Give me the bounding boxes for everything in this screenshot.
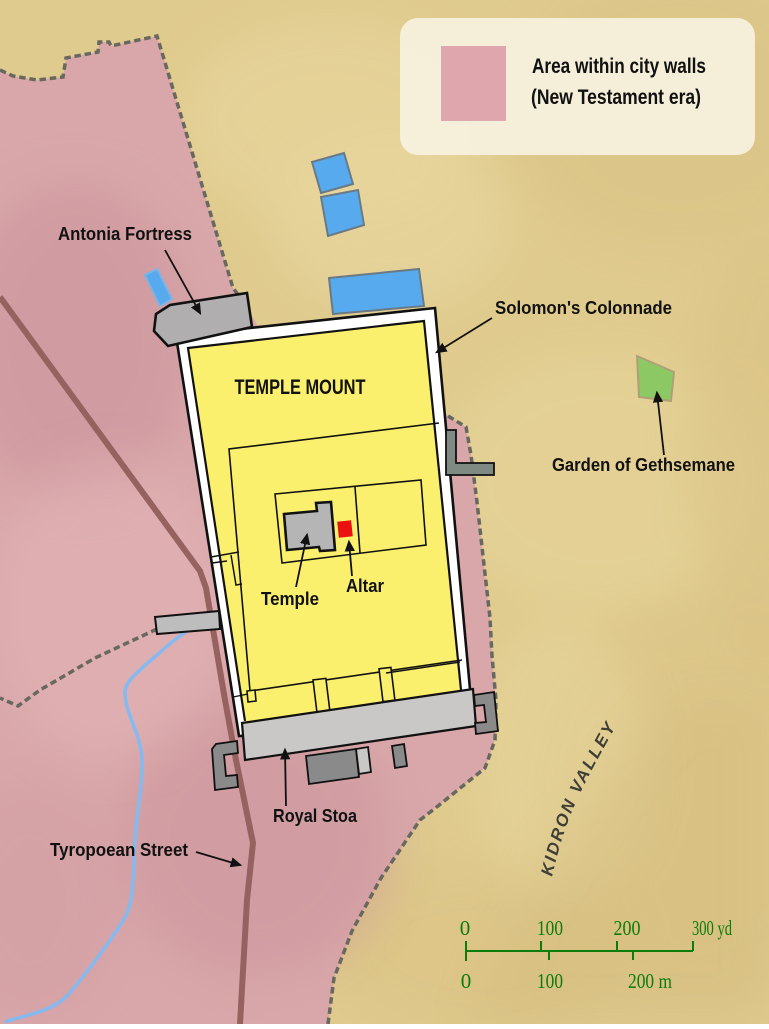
svg-text:200: 200 [614, 916, 641, 940]
svg-text:Garden of Gethsemane: Garden of Gethsemane [552, 455, 735, 475]
svg-text:Antonia Fortress: Antonia Fortress [58, 224, 192, 244]
svg-text:0: 0 [460, 916, 471, 940]
svg-text:200 m: 200 m [628, 969, 672, 993]
svg-text:(New Testament era): (New Testament era) [531, 85, 701, 109]
svg-text:0: 0 [461, 969, 472, 993]
svg-text:Area within city walls: Area within city walls [532, 54, 706, 78]
svg-text:Temple: Temple [261, 589, 319, 609]
svg-text:100: 100 [537, 916, 563, 940]
svg-text:100: 100 [537, 969, 563, 993]
svg-text:Tyropoean Street: Tyropoean Street [50, 840, 188, 860]
svg-text:Altar: Altar [346, 576, 384, 596]
svg-text:300 yd: 300 yd [692, 916, 732, 940]
svg-text:Royal Stoa: Royal Stoa [273, 806, 358, 826]
svg-text:Solomon's Colonnade: Solomon's Colonnade [495, 298, 672, 318]
svg-text:TEMPLE MOUNT: TEMPLE MOUNT [235, 376, 366, 399]
